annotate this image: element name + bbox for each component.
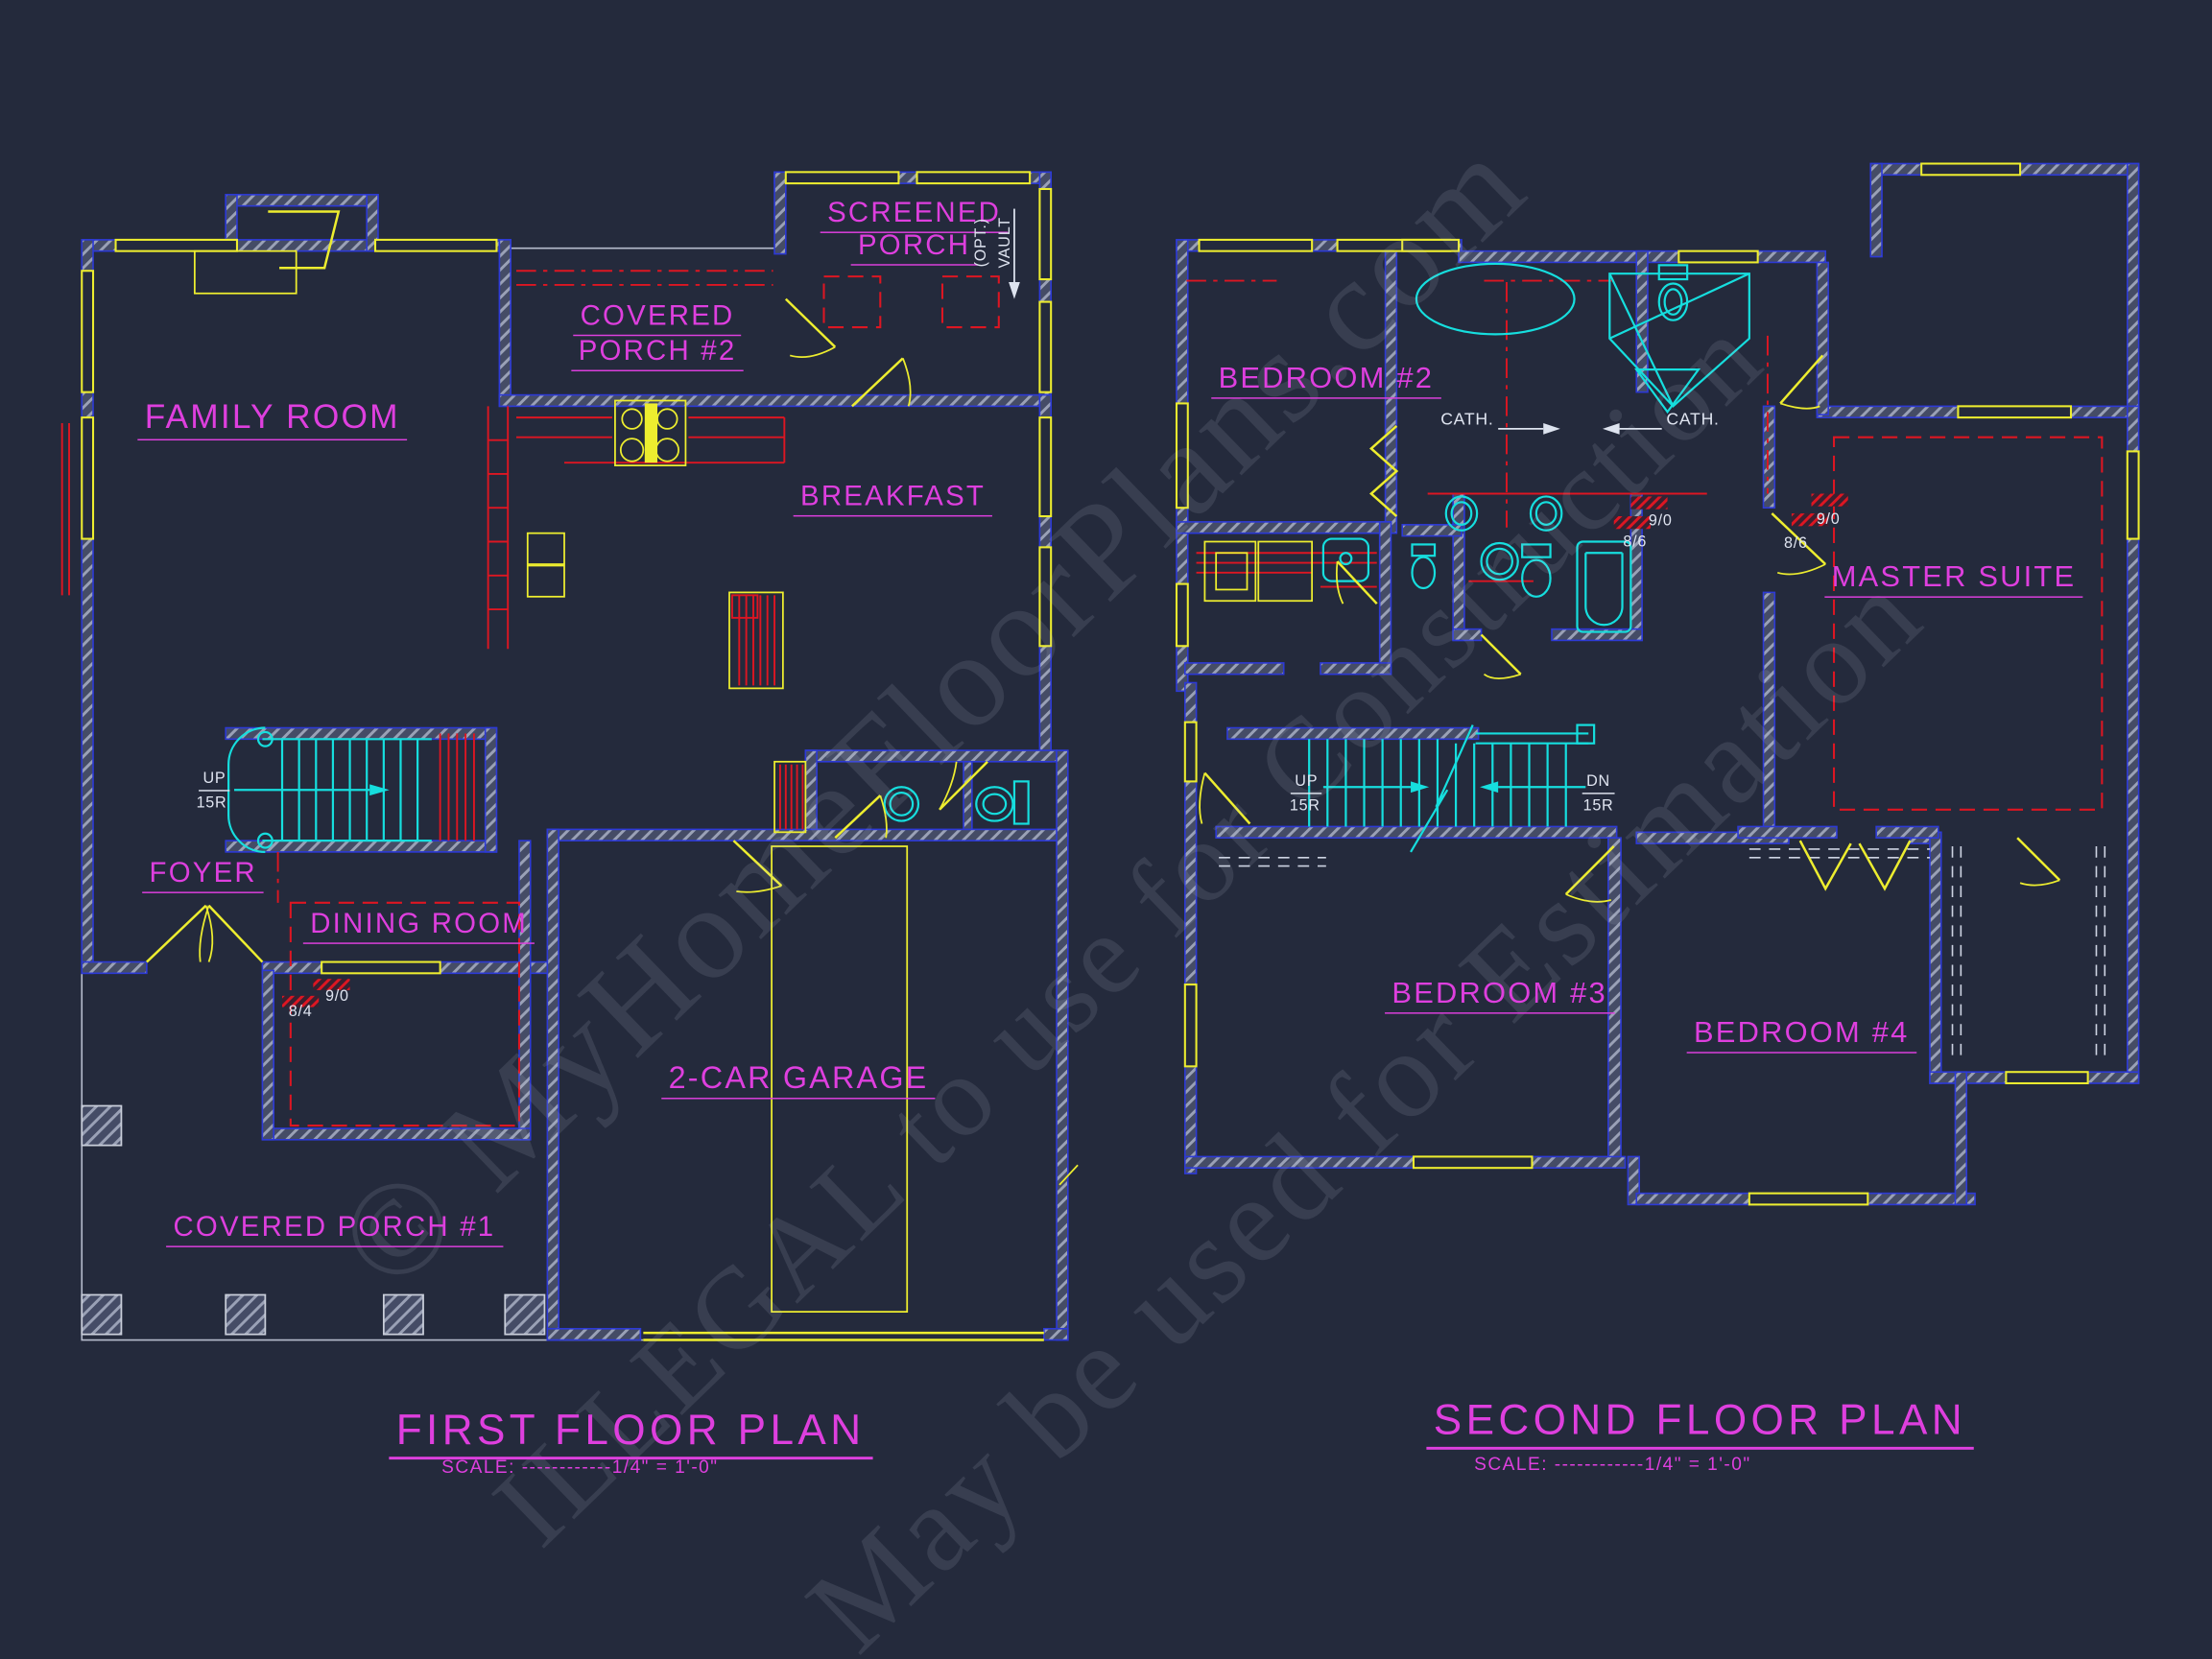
- stair-up-label-sf: UP: [1291, 774, 1322, 794]
- second-floor-plan: [1177, 164, 2139, 1205]
- stove: [615, 400, 686, 465]
- opt-label: (OPT.): [973, 218, 990, 267]
- room-label-bedroom3: BEDROOM #3: [1385, 979, 1614, 1013]
- fireplace: [195, 212, 339, 294]
- stair-dn-label-sf: DN: [1582, 774, 1615, 794]
- room-label-covered-porch2-line2: PORCH #2: [571, 338, 743, 371]
- stairs-first-floor: [228, 728, 474, 852]
- basement-stair: [774, 762, 805, 833]
- first-floor-doors: [147, 299, 1078, 1340]
- room-label-covered-porch1: COVERED PORCH #1: [166, 1214, 503, 1247]
- refrigerator: [528, 533, 564, 597]
- room-label-foyer: FOYER: [142, 860, 264, 893]
- second-floor-title: SECOND FLOOR PLAN: [1426, 1400, 1973, 1449]
- room-label-screened-porch-line2: PORCH: [851, 231, 978, 265]
- second-floor-scale: SCALE: ------------1/4" = 1'-0": [1467, 1455, 1758, 1477]
- stair-dn-risers-sf: 15R: [1583, 799, 1614, 815]
- stair-up-risers-ff: 15R: [197, 796, 227, 812]
- first-floor-plan: [62, 172, 1078, 1339]
- stair-up-label-ff: UP: [199, 771, 230, 792]
- ceiling-height-8-6-right: 8/6: [1784, 536, 1808, 552]
- powder-room-fixtures: [885, 781, 1029, 823]
- cath-label-left: CATH.: [1440, 411, 1493, 428]
- first-floor-windows: [82, 172, 1051, 973]
- drawing-stage: © MyHomeFloorPlans.com ILLEGAL to use fo…: [0, 0, 2212, 1659]
- cath-arrows: [1498, 423, 1662, 435]
- room-label-bedroom4: BEDROOM #4: [1687, 1018, 1916, 1053]
- room-label-family-room: FAMILY ROOM: [137, 401, 407, 439]
- room-label-bedroom2: BEDROOM #2: [1211, 364, 1440, 398]
- ceiling-height-9-0-right: 9/0: [1817, 512, 1841, 528]
- first-floor-scale: SCALE: ------------1/4" = 1'-0": [435, 1458, 725, 1480]
- opt-vault-label: (OPT.) VAULT: [970, 217, 1017, 268]
- ceiling-height-8-6-left: 8/6: [1623, 535, 1647, 551]
- stairs-second-floor: [1219, 725, 1594, 866]
- room-label-breakfast: BREAKFAST: [794, 483, 993, 516]
- blueprint-canvas: © MyHomeFloorPlans.com ILLEGAL to use fo…: [0, 0, 2212, 1659]
- room-label-garage: 2-CAR GARAGE: [661, 1062, 936, 1098]
- second-floor-walls: [1177, 164, 2139, 1205]
- ceiling-height-9-0-ff: 9/0: [325, 989, 349, 1005]
- dining-ceiling: [278, 852, 519, 1126]
- ceiling-height-8-4: 8/4: [289, 1005, 313, 1020]
- stair-up-risers-sf: 15R: [1290, 799, 1320, 815]
- pantry-cabinet: [729, 592, 783, 688]
- cath-label-right: CATH.: [1666, 411, 1719, 428]
- second-floor-windows: [1177, 164, 2139, 1205]
- room-label-covered-porch2-line1: COVERED: [573, 302, 742, 336]
- family-room-builtin: [62, 423, 69, 595]
- ceiling-height-9-0-left: 9/0: [1649, 514, 1673, 530]
- first-floor-title: FIRST FLOOR PLAN: [389, 1410, 872, 1459]
- vault-label: VAULT: [996, 217, 1013, 268]
- room-label-dining-room: DINING ROOM: [303, 911, 535, 944]
- room-label-master-suite: MASTER SUITE: [1824, 562, 2082, 597]
